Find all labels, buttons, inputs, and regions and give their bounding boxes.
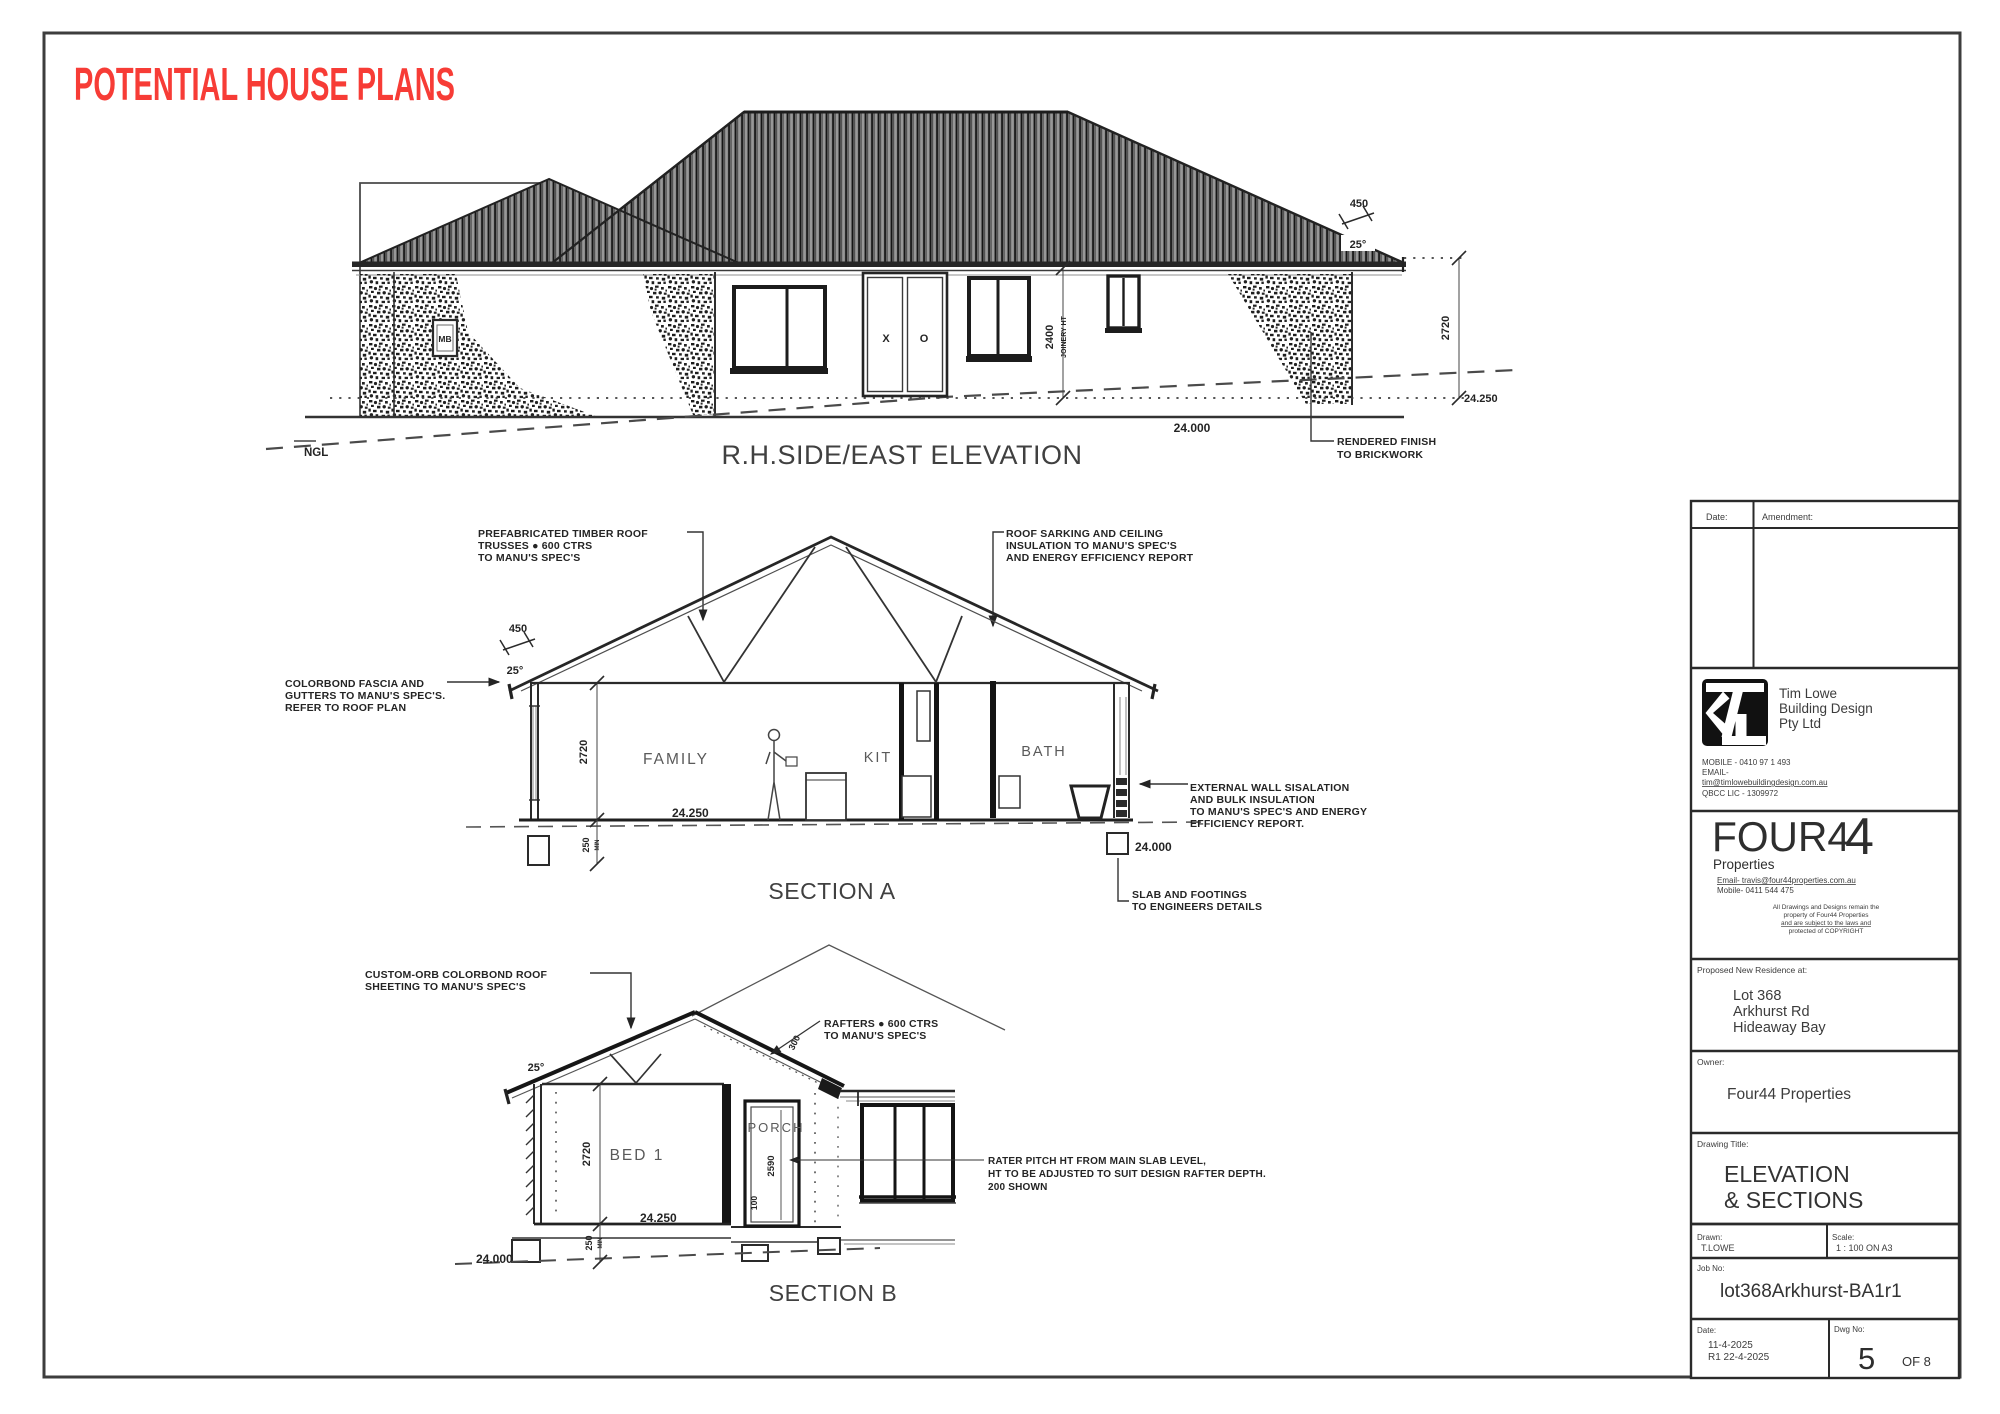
svg-text:TO MANU'S SPEC'S: TO MANU'S SPEC'S <box>824 1030 927 1042</box>
svg-text:24.000: 24.000 <box>1174 421 1211 435</box>
svg-text:250: 250 <box>581 837 591 852</box>
svg-text:RAFTERS ● 600 CTRS: RAFTERS ● 600 CTRS <box>824 1018 938 1030</box>
svg-text:& SECTIONS: & SECTIONS <box>1724 1187 1863 1213</box>
svg-text:All Drawings and Designs remai: All Drawings and Designs remain the <box>1773 904 1880 911</box>
svg-text:and are subject to the laws an: and are subject to the laws and <box>1781 920 1871 927</box>
svg-text:PORCH: PORCH <box>748 1120 805 1135</box>
svg-text:X: X <box>882 333 890 345</box>
svg-text:5: 5 <box>1858 1341 1875 1376</box>
svg-text:ELEVATION: ELEVATION <box>1724 1161 1850 1187</box>
svg-text:R.H.SIDE/EAST ELEVATION: R.H.SIDE/EAST ELEVATION <box>721 440 1082 470</box>
svg-text:4: 4 <box>1845 808 1874 866</box>
svg-text:Date:: Date: <box>1706 512 1728 522</box>
svg-text:QBCC LIC - 1309972: QBCC LIC - 1309972 <box>1702 789 1779 798</box>
svg-text:Amendment:: Amendment: <box>1762 512 1813 522</box>
svg-text:KIT: KIT <box>864 750 893 766</box>
svg-text:Job No:: Job No: <box>1697 1264 1725 1273</box>
svg-text:24.250: 24.250 <box>672 806 709 820</box>
svg-text:Properties: Properties <box>1713 857 1775 872</box>
svg-text:Tim Lowe: Tim Lowe <box>1779 686 1837 701</box>
svg-text:JOINERY HT: JOINERY HT <box>1061 315 1068 357</box>
svg-text:FAMILY: FAMILY <box>643 751 709 768</box>
svg-text:SLAB AND FOOTINGS: SLAB AND FOOTINGS <box>1132 889 1247 901</box>
svg-text:MB: MB <box>438 334 451 344</box>
svg-text:RENDERED FINISH: RENDERED FINISH <box>1337 436 1436 448</box>
svg-text:PREFABRICATED TIMBER ROOF: PREFABRICATED TIMBER ROOF <box>478 528 648 540</box>
svg-text:TO MANU'S SPEC'S AND ENERGY: TO MANU'S SPEC'S AND ENERGY <box>1190 806 1367 818</box>
svg-text:450: 450 <box>1350 198 1368 210</box>
svg-text:NGL: NGL <box>304 447 328 459</box>
svg-text:2590: 2590 <box>766 1155 777 1176</box>
svg-text:ROOF SARKING AND CEILING: ROOF SARKING AND CEILING <box>1006 528 1163 540</box>
svg-text:2720: 2720 <box>581 1142 593 1166</box>
svg-text:MIN: MIN <box>598 1238 604 1249</box>
svg-text:Dwg No:: Dwg No: <box>1834 1325 1865 1334</box>
svg-text:1 : 100 ON A3: 1 : 100 ON A3 <box>1836 1243 1893 1253</box>
svg-text:Lot 368: Lot 368 <box>1733 988 1781 1004</box>
svg-text:Email- travis@four44properties: Email- travis@four44properties.com.au <box>1717 876 1856 885</box>
svg-text:MOBILE - 0410 97 1 493: MOBILE - 0410 97 1 493 <box>1702 758 1791 767</box>
svg-text:protected of COPYRIGHT: protected of COPYRIGHT <box>1789 928 1864 935</box>
svg-text:SECTION B: SECTION B <box>769 1280 897 1306</box>
svg-text:Building Design: Building Design <box>1779 701 1873 716</box>
svg-text:24.000: 24.000 <box>476 1252 513 1266</box>
svg-text:MIN: MIN <box>595 840 601 851</box>
svg-text:24.250: 24.250 <box>1464 393 1498 405</box>
svg-text:250: 250 <box>584 1235 594 1250</box>
svg-text:Owner:: Owner: <box>1697 1057 1724 1067</box>
svg-text:25°: 25° <box>528 1062 545 1074</box>
svg-text:EFFICIENCY REPORT.: EFFICIENCY REPORT. <box>1190 818 1304 830</box>
svg-text:SHEETING TO MANU'S SPEC'S: SHEETING TO MANU'S SPEC'S <box>365 981 526 993</box>
svg-text:2720: 2720 <box>578 740 590 764</box>
svg-text:REFER TO ROOF PLAN: REFER TO ROOF PLAN <box>285 702 406 714</box>
svg-text:SECTION A: SECTION A <box>768 878 895 904</box>
svg-text:POTENTIAL HOUSE PLANS: POTENTIAL HOUSE PLANS <box>74 58 455 110</box>
svg-text:TO BRICKWORK: TO BRICKWORK <box>1337 449 1423 461</box>
svg-text:tim@timlowebuildingdesign.com.: tim@timlowebuildingdesign.com.au <box>1702 778 1828 787</box>
svg-text:RATER PITCH HT FROM MAIN SLAB: RATER PITCH HT FROM MAIN SLAB LEVEL, <box>988 1156 1206 1167</box>
svg-text:BED 1: BED 1 <box>610 1147 665 1164</box>
svg-text:TRUSSES ● 600 CTRS: TRUSSES ● 600 CTRS <box>478 540 592 552</box>
svg-text:25°: 25° <box>507 665 524 677</box>
svg-text:GUTTERS TO MANU'S SPEC'S.: GUTTERS TO MANU'S SPEC'S. <box>285 690 445 702</box>
svg-text:OF 8: OF 8 <box>1902 1354 1931 1369</box>
svg-text:Pty Ltd: Pty Ltd <box>1779 716 1821 731</box>
svg-text:INSULATION TO MANU'S SPEC'S: INSULATION TO MANU'S SPEC'S <box>1006 540 1177 552</box>
svg-text:11-4-2025: 11-4-2025 <box>1708 1340 1753 1351</box>
svg-text:CUSTOM-ORB COLORBOND ROOF: CUSTOM-ORB COLORBOND ROOF <box>365 969 548 981</box>
svg-text:COLORBOND FASCIA AND: COLORBOND FASCIA AND <box>285 678 424 690</box>
svg-text:2720: 2720 <box>1440 316 1452 340</box>
svg-text:Mobile- 0411 544 475: Mobile- 0411 544 475 <box>1717 886 1794 895</box>
svg-text:Arkhurst Rd: Arkhurst Rd <box>1733 1004 1810 1020</box>
svg-text:100: 100 <box>749 1196 759 1210</box>
svg-text:TO MANU'S SPEC'S: TO MANU'S SPEC'S <box>478 552 581 564</box>
svg-text:T.LOWE: T.LOWE <box>1701 1243 1735 1253</box>
svg-text:Proposed New Residence at:: Proposed New Residence at: <box>1697 965 1807 975</box>
svg-text:Drawing Title:: Drawing Title: <box>1697 1139 1749 1149</box>
svg-text:AND ENERGY EFFICIENCY REPORT: AND ENERGY EFFICIENCY REPORT <box>1006 552 1194 564</box>
svg-text:24.250: 24.250 <box>640 1211 677 1225</box>
svg-text:Four44 Properties: Four44 Properties <box>1727 1086 1851 1103</box>
svg-text:HT TO BE ADJUSTED TO SUIT DESI: HT TO BE ADJUSTED TO SUIT DESIGN RAFTER … <box>988 1169 1266 1180</box>
svg-text:EMAIL-: EMAIL- <box>1702 768 1729 777</box>
svg-text:BATH: BATH <box>1021 744 1067 760</box>
svg-text:property of Four44 Properties: property of Four44 Properties <box>1784 912 1870 919</box>
svg-text:R1 22-4-2025: R1 22-4-2025 <box>1708 1352 1770 1363</box>
svg-text:Drawn:: Drawn: <box>1697 1233 1722 1242</box>
svg-text:Scale:: Scale: <box>1832 1233 1854 1242</box>
svg-text:FOUR4: FOUR4 <box>1712 813 1850 860</box>
svg-text:Hideaway Bay: Hideaway Bay <box>1733 1020 1826 1036</box>
svg-text:24.000: 24.000 <box>1135 840 1172 854</box>
svg-text:lot368Arkhurst-BA1r1: lot368Arkhurst-BA1r1 <box>1720 1281 1902 1302</box>
svg-text:25°: 25° <box>1350 239 1367 251</box>
svg-text:EXTERNAL WALL SISALATION: EXTERNAL WALL SISALATION <box>1190 782 1349 794</box>
svg-text:TO ENGINEERS DETAILS: TO ENGINEERS DETAILS <box>1132 901 1262 913</box>
svg-text:200 SHOWN: 200 SHOWN <box>988 1182 1048 1193</box>
svg-text:O: O <box>920 333 929 345</box>
svg-text:AND BULK INSULATION: AND BULK INSULATION <box>1190 794 1315 806</box>
svg-text:Date:: Date: <box>1697 1326 1716 1335</box>
svg-text:2400: 2400 <box>1044 325 1056 349</box>
